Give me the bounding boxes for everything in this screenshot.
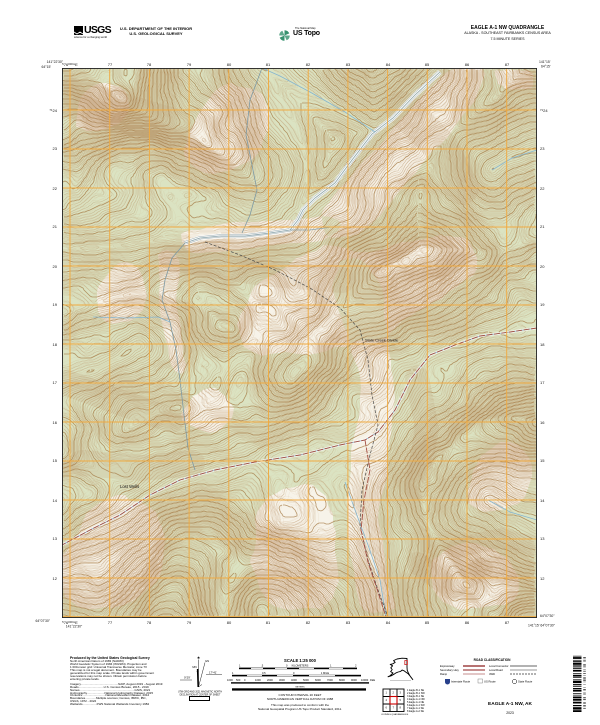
svg-text:1: 1 (239, 664, 241, 668)
svg-text:15: 15 (540, 458, 545, 463)
svg-text:.5: .5 (261, 664, 264, 668)
svg-text:US Route: US Route (484, 680, 496, 684)
svg-text:80: 80 (227, 620, 232, 625)
svg-text:0: 0 (286, 664, 288, 668)
svg-text:79: 79 (187, 62, 192, 67)
svg-text:16: 16 (540, 420, 545, 425)
svg-text:5: 5 (400, 698, 402, 702)
svg-text:Expressway: Expressway (440, 664, 455, 668)
svg-text:3: 3 (400, 691, 402, 695)
svg-text:0.5: 0.5 (262, 671, 266, 675)
svg-text:GN: GN (205, 659, 209, 663)
svg-text:7124: 7124 (49, 108, 57, 113)
svg-text:64°07'30": 64°07'30" (540, 614, 555, 618)
svg-text:19: 19 (53, 302, 58, 307)
svg-text:FEET: FEET (370, 678, 375, 682)
svg-text:15: 15 (53, 458, 58, 463)
svg-text:12: 12 (540, 576, 545, 581)
svg-text:5000: 5000 (303, 678, 309, 682)
svg-text:4WD: 4WD (489, 672, 495, 676)
svg-text:17°41': 17°41' (209, 671, 217, 675)
svg-text:6: 6 (386, 706, 388, 710)
svg-text:ADJOINING QUADRANGLES: ADJOINING QUADRANGLES (381, 713, 409, 716)
svg-text:1: 1 (232, 671, 234, 675)
svg-text:2: 2 (393, 691, 395, 695)
svg-text:17: 17 (540, 380, 545, 385)
svg-text:★: ★ (197, 655, 201, 660)
svg-text:0°29': 0°29' (184, 676, 191, 680)
svg-text:8: 8 (400, 706, 402, 710)
svg-text:1: 1 (330, 664, 332, 668)
svg-text:Interstate Route: Interstate Route (451, 680, 471, 684)
svg-text:14: 14 (540, 498, 545, 503)
svg-text:18: 18 (540, 342, 545, 347)
svg-text:16: 16 (53, 420, 58, 425)
svg-text:19: 19 (540, 302, 545, 307)
svg-text:83: 83 (346, 62, 351, 67)
svg-text:81: 81 (266, 62, 271, 67)
svg-text:Ramp: Ramp (440, 672, 448, 676)
svg-text:22: 22 (53, 186, 58, 191)
svg-text:2000: 2000 (267, 678, 273, 682)
svg-text:Secondary Hwy: Secondary Hwy (440, 668, 459, 672)
svg-text:64°15': 64°15' (41, 65, 51, 69)
svg-text:141°22'30": 141°22'30" (66, 625, 83, 629)
svg-text:12: 12 (53, 576, 58, 581)
svg-text:80: 80 (227, 62, 232, 67)
svg-text:83: 83 (346, 620, 351, 625)
svg-text:MN: MN (192, 665, 196, 669)
svg-text:1: 1 (386, 691, 388, 695)
svg-text:87: 87 (505, 62, 510, 67)
svg-text:8 Eagle A-2 SE: 8 Eagle A-2 SE (407, 710, 424, 713)
svg-text:576000mE: 576000mE (62, 62, 78, 67)
svg-text:77: 77 (108, 620, 113, 625)
svg-text:86: 86 (465, 620, 470, 625)
svg-text:20: 20 (53, 264, 58, 269)
svg-text:1 MILE: 1 MILE (321, 671, 329, 675)
svg-text:21: 21 (53, 224, 58, 229)
svg-text:64°07'30": 64°07'30" (35, 619, 50, 623)
svg-text:13: 13 (540, 536, 545, 541)
svg-text:2: 2 (355, 664, 357, 668)
svg-text:141°22'30": 141°22'30" (47, 60, 64, 64)
svg-text:20: 20 (540, 264, 545, 269)
svg-text:3000: 3000 (279, 678, 285, 682)
svg-text:78: 78 (147, 620, 152, 625)
svg-text:84: 84 (386, 620, 391, 625)
svg-text:METERS: METERS (295, 687, 305, 689)
svg-text:82: 82 (306, 62, 311, 67)
svg-text:64°15': 64°15' (541, 65, 551, 69)
svg-text:17: 17 (53, 380, 58, 385)
svg-text:0: 0 (244, 678, 246, 682)
svg-text:141°15': 141°15' (539, 60, 551, 64)
svg-text:85: 85 (425, 62, 430, 67)
svg-text:0: 0 (293, 671, 295, 675)
svg-text:85: 85 (425, 620, 430, 625)
svg-text:77: 77 (108, 62, 113, 67)
svg-text:7: 7 (393, 706, 395, 710)
svg-text:500: 500 (236, 678, 241, 682)
svg-text:State Route: State Route (518, 680, 533, 684)
svg-text:23: 23 (540, 146, 545, 151)
svg-text:1000: 1000 (255, 678, 261, 682)
svg-text:4: 4 (386, 698, 388, 702)
svg-text:18: 18 (53, 342, 58, 347)
svg-text:81: 81 (266, 620, 271, 625)
svg-text:78: 78 (147, 62, 152, 67)
svg-text:7000: 7000 (327, 678, 333, 682)
svg-text:87: 87 (505, 620, 510, 625)
svg-text:84: 84 (386, 62, 391, 67)
svg-text:8000: 8000 (339, 678, 345, 682)
svg-text:KILOMETERS: KILOMETERS (292, 664, 309, 668)
svg-text:Local Connector: Local Connector (489, 664, 509, 668)
svg-text:79: 79 (187, 620, 192, 625)
svg-text:23: 23 (53, 146, 58, 151)
svg-text:9000: 9000 (351, 678, 357, 682)
svg-text:22: 22 (540, 186, 545, 191)
svg-text:10000: 10000 (361, 678, 369, 682)
svg-text:13: 13 (53, 536, 58, 541)
svg-text:UTM GRID AND 2021 MAGNETIC NOR: UTM GRID AND 2021 MAGNETIC NORTH (178, 691, 222, 694)
svg-text:86: 86 (465, 62, 470, 67)
svg-text:7124: 7124 (540, 108, 548, 113)
svg-text:21: 21 (540, 224, 545, 229)
svg-text:6000: 6000 (315, 678, 321, 682)
svg-text:1000: 1000 (227, 678, 233, 682)
svg-text:14: 14 (53, 498, 58, 503)
svg-text:Local Road: Local Road (489, 668, 503, 672)
svg-text:82: 82 (306, 620, 311, 625)
svg-text:4000: 4000 (291, 678, 297, 682)
svg-text:141°15' 64°07'30": 141°15' 64°07'30" (528, 624, 556, 628)
